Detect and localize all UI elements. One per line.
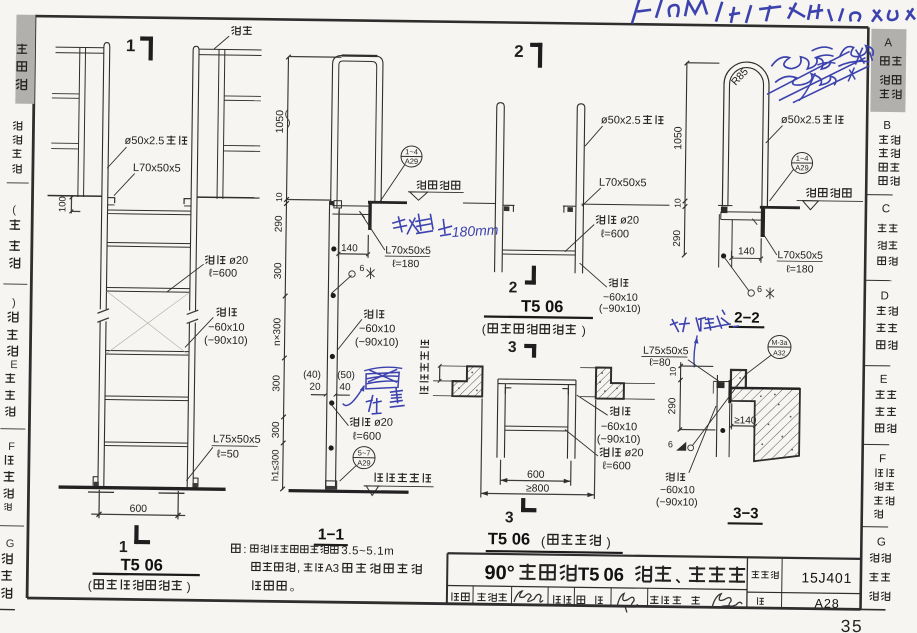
svg-text:L75x50x5: L75x50x5 xyxy=(643,345,689,358)
svg-text:06: 06 xyxy=(545,298,564,316)
svg-text:L70x50x5: L70x50x5 xyxy=(133,162,181,175)
svg-text:ø50x2.5: ø50x2.5 xyxy=(125,135,165,148)
svg-text:): ) xyxy=(187,580,191,594)
svg-text:(40): (40) xyxy=(303,370,321,381)
svg-text:1−1: 1−1 xyxy=(318,526,345,543)
svg-text:300: 300 xyxy=(273,262,284,279)
svg-text:(−90x10): (−90x10) xyxy=(599,303,641,316)
svg-text:G: G xyxy=(6,538,15,550)
svg-text:10: 10 xyxy=(274,192,284,202)
svg-text:1: 1 xyxy=(126,36,136,55)
svg-text:600: 600 xyxy=(527,469,545,481)
svg-text:−60x10: −60x10 xyxy=(601,421,638,433)
svg-text:B: B xyxy=(883,120,891,132)
svg-text:6: 6 xyxy=(668,439,673,449)
svg-text:E: E xyxy=(10,359,18,371)
svg-text:2−2: 2−2 xyxy=(734,309,760,326)
svg-text:ℓ=600: ℓ=600 xyxy=(601,228,630,240)
svg-text:1~4: 1~4 xyxy=(405,147,418,156)
svg-text:1050: 1050 xyxy=(672,126,684,150)
svg-text:M-3a: M-3a xyxy=(771,340,787,347)
svg-text:2: 2 xyxy=(509,279,518,296)
svg-text:): ) xyxy=(582,324,586,338)
svg-text:D: D xyxy=(881,290,889,302)
svg-text:、: 、 xyxy=(675,570,688,585)
svg-text:300: 300 xyxy=(271,375,282,392)
svg-text:A3: A3 xyxy=(325,563,339,575)
svg-text:ℓ=180: ℓ=180 xyxy=(392,258,419,270)
svg-text:140: 140 xyxy=(738,246,755,257)
svg-text:(−90x10): (−90x10) xyxy=(355,336,399,349)
svg-text:−60x10: −60x10 xyxy=(660,484,695,496)
svg-text:1: 1 xyxy=(119,539,128,556)
svg-text:(50): (50) xyxy=(337,370,355,381)
svg-text:≥800: ≥800 xyxy=(526,482,550,494)
svg-text:A29: A29 xyxy=(795,163,808,172)
svg-text:1~4: 1~4 xyxy=(796,154,809,163)
svg-text:(: ( xyxy=(482,322,486,336)
svg-text:): ) xyxy=(12,297,16,309)
svg-text:−60x10: −60x10 xyxy=(359,323,396,335)
svg-text:L70x50x5: L70x50x5 xyxy=(599,177,647,190)
svg-text:06: 06 xyxy=(512,530,531,548)
svg-text:2: 2 xyxy=(514,42,524,61)
svg-text:ℓ=50: ℓ=50 xyxy=(217,448,239,460)
svg-text:06: 06 xyxy=(603,564,624,585)
svg-text:ø50x2.5: ø50x2.5 xyxy=(601,114,641,127)
svg-text:20: 20 xyxy=(309,382,321,393)
svg-text:E: E xyxy=(880,374,888,386)
svg-text:290: 290 xyxy=(667,397,678,414)
svg-text:290: 290 xyxy=(672,230,683,247)
svg-text:ℓ=180: ℓ=180 xyxy=(786,263,813,275)
svg-text:(: ( xyxy=(541,534,546,549)
svg-text:3: 3 xyxy=(505,509,514,526)
svg-text:(: ( xyxy=(12,204,16,216)
svg-text:A29: A29 xyxy=(357,458,370,467)
svg-text:R85: R85 xyxy=(729,66,751,88)
svg-text:ℓ=600: ℓ=600 xyxy=(602,460,631,472)
svg-text:40: 40 xyxy=(339,382,351,393)
svg-text:−60x10: −60x10 xyxy=(208,321,245,333)
svg-text:L70x50x5: L70x50x5 xyxy=(385,244,431,257)
svg-text:n×300: n×300 xyxy=(272,317,283,346)
svg-text:140: 140 xyxy=(341,243,358,254)
svg-text:T5: T5 xyxy=(521,298,541,316)
svg-text:(−90x10): (−90x10) xyxy=(656,496,698,509)
svg-text:1050: 1050 xyxy=(274,110,286,134)
svg-text:。: 。 xyxy=(290,582,302,594)
svg-text:300: 300 xyxy=(271,421,282,438)
svg-text::: : xyxy=(243,544,246,556)
svg-text:G: G xyxy=(877,536,886,548)
svg-text:(−90x10): (−90x10) xyxy=(204,334,248,347)
svg-text:F: F xyxy=(8,441,15,453)
svg-text:(−90x10): (−90x10) xyxy=(597,433,641,446)
svg-text:ℓ=600: ℓ=600 xyxy=(353,430,382,442)
svg-text:10: 10 xyxy=(672,198,682,208)
svg-text:290: 290 xyxy=(274,215,285,232)
svg-text:ø50x2.5: ø50x2.5 xyxy=(781,114,821,127)
svg-text:F: F xyxy=(879,453,886,465)
svg-text:A29: A29 xyxy=(405,157,418,166)
svg-text:L70x50x5: L70x50x5 xyxy=(777,249,823,262)
svg-text:06: 06 xyxy=(144,556,163,574)
svg-text:ℓ=600: ℓ=600 xyxy=(209,267,238,279)
svg-text:5~7: 5~7 xyxy=(358,448,371,457)
svg-text:ø20: ø20 xyxy=(625,447,644,459)
svg-text:A32: A32 xyxy=(773,350,786,357)
svg-text:6: 6 xyxy=(359,263,364,273)
svg-text:3−3: 3−3 xyxy=(733,505,759,522)
svg-text:A: A xyxy=(884,37,892,49)
svg-text:180mm: 180mm xyxy=(451,221,499,240)
svg-text:90°: 90° xyxy=(484,562,515,584)
svg-text:3: 3 xyxy=(508,339,517,356)
svg-text:≥140: ≥140 xyxy=(734,415,757,426)
svg-text:6: 6 xyxy=(757,284,762,294)
svg-text:T5: T5 xyxy=(120,556,140,574)
svg-text:): ) xyxy=(606,535,611,550)
svg-text:100: 100 xyxy=(57,196,68,212)
svg-text:3.5~5.1m: 3.5~5.1m xyxy=(341,545,394,558)
svg-text:C: C xyxy=(882,203,890,215)
svg-text:(: ( xyxy=(88,578,92,592)
svg-text:T5: T5 xyxy=(488,530,508,548)
svg-text:ø20: ø20 xyxy=(374,417,393,429)
svg-text:15J401: 15J401 xyxy=(801,569,852,586)
svg-text:T5: T5 xyxy=(578,563,600,584)
svg-text:10: 10 xyxy=(668,367,678,377)
svg-text:ø20: ø20 xyxy=(620,214,639,226)
svg-text:A28: A28 xyxy=(814,597,839,611)
svg-text:ø20: ø20 xyxy=(229,255,248,267)
svg-text:,: , xyxy=(297,562,300,574)
svg-text:600: 600 xyxy=(129,503,147,515)
svg-text:35: 35 xyxy=(841,616,864,633)
svg-text:L75x50x5: L75x50x5 xyxy=(213,433,261,446)
svg-text:h1≤300: h1≤300 xyxy=(270,449,281,481)
